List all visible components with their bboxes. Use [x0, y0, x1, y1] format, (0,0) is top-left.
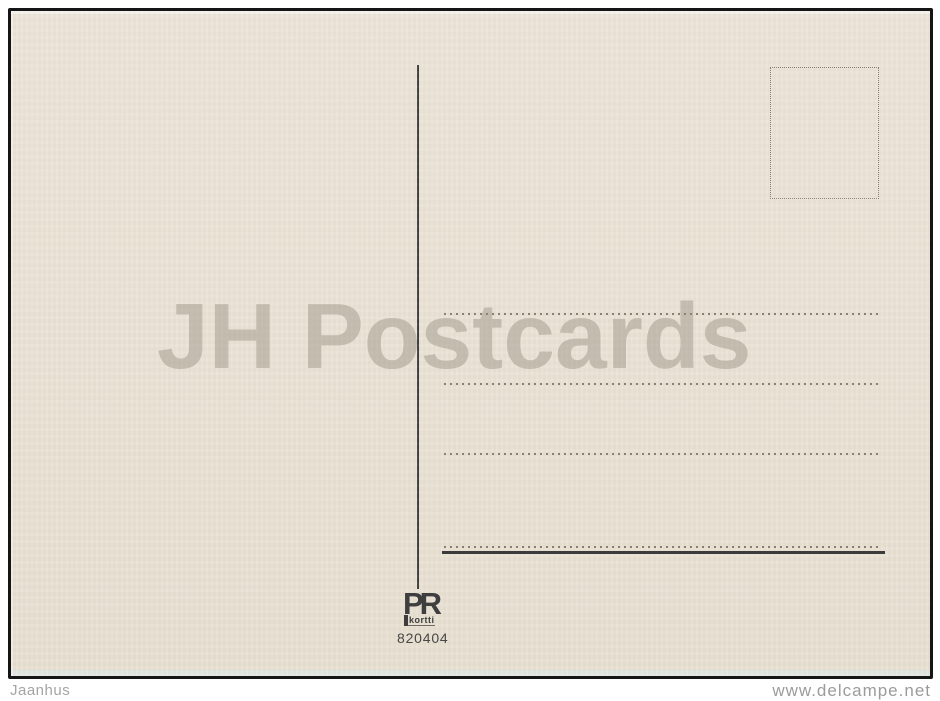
publisher-initials: PR	[403, 591, 455, 617]
publisher-name-box: kortti	[404, 615, 455, 626]
site-watermark-label: www.delcampe.net	[772, 681, 931, 701]
postcard-scan: JH Postcards PR kortti 820404	[8, 8, 933, 679]
seller-watermark-label: Jaanhus	[10, 682, 70, 699]
watermark-text: JH Postcards	[157, 283, 797, 390]
address-line	[444, 453, 882, 455]
stamp-box	[770, 67, 879, 199]
signature-line-solid	[442, 551, 885, 554]
publisher-name-label: kortti	[408, 615, 435, 626]
signature-line-dotted	[444, 546, 880, 548]
publisher-logo: PR kortti	[403, 591, 455, 626]
card-number: 820404	[397, 630, 449, 646]
